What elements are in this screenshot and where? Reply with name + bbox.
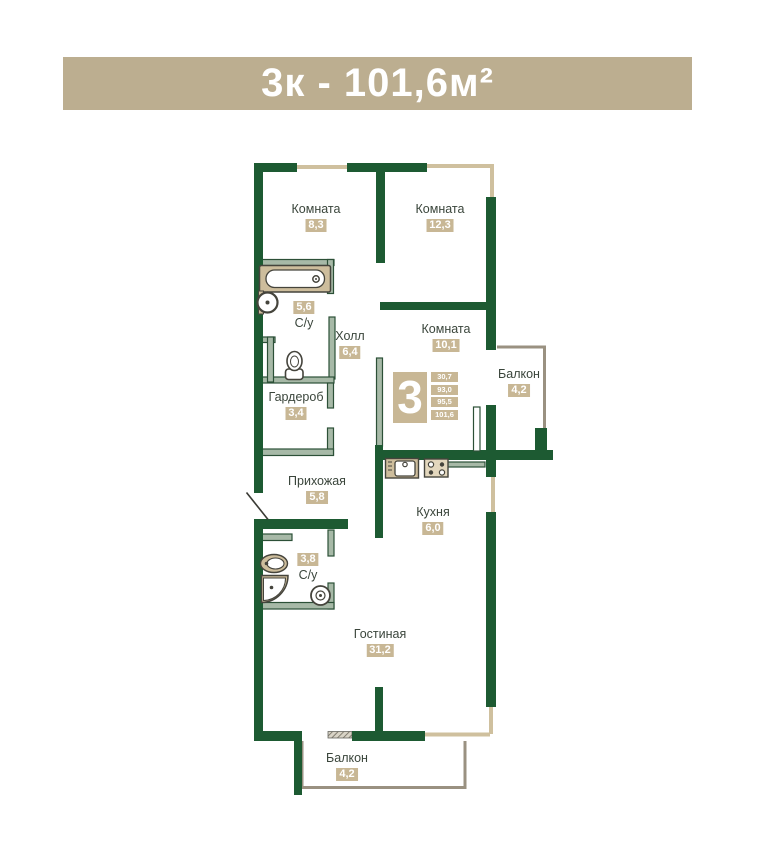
room-label-bathroom-2: 3,8 С/у (297, 553, 318, 582)
area-value: 95,5 (431, 397, 458, 407)
room-label-komnata-2: Комната 12,3 (416, 202, 465, 232)
area-value: 101,6 (431, 410, 458, 420)
room-label-entry: Прихожая 5,8 (288, 474, 346, 504)
area-badge: 6,0 (422, 522, 443, 535)
floor-plan-page: 3к - 101,6м² (0, 0, 762, 866)
floor-plan-drawing (0, 0, 762, 866)
entrance-door-icon (247, 493, 269, 520)
shower-icon (262, 576, 289, 603)
apartment-summary: 3 30,7 93,0 95,5 101,6 (393, 372, 458, 423)
balcony-door-icon (474, 407, 481, 451)
area-badge: 8,3 (305, 219, 326, 232)
kitchen-sink-icon (386, 459, 419, 479)
area-badge: 5,6 (293, 301, 314, 314)
room-label-living: Гостиная 31,2 (354, 627, 406, 657)
area-value: 30,7 (431, 372, 458, 382)
area-badge: 31,2 (366, 644, 393, 657)
toilet-icon (286, 352, 304, 380)
stove-icon (425, 459, 449, 477)
floor-plan: Комната 8,3 Комната 12,3 5,6 С/у Холл 6,… (0, 0, 762, 866)
room-label-komnata-1: Комната 8,3 (292, 202, 341, 232)
area-badge: 4,2 (508, 384, 529, 397)
room-label-komnata-3: Комната 10,1 (422, 322, 471, 352)
area-badge: 4,2 (336, 768, 357, 781)
room-label-balcony-right: Балкон 4,2 (498, 367, 540, 397)
area-badge: 5,8 (306, 491, 327, 504)
area-badge: 3,4 (285, 407, 306, 420)
washbasin-icon (261, 555, 288, 573)
area-badge: 6,4 (339, 346, 360, 359)
area-values: 30,7 93,0 95,5 101,6 (431, 372, 458, 423)
bathtub-icon (260, 266, 331, 293)
room-label-bathroom-1: 5,6 С/у (293, 301, 314, 330)
room-label-hall: Холл 6,4 (335, 329, 364, 359)
room-label-balcony-bottom: Балкон 4,2 (326, 751, 368, 781)
area-badge: 3,8 (297, 553, 318, 566)
toilet-icon (311, 586, 330, 605)
area-badge: 12,3 (426, 219, 453, 232)
area-value: 93,0 (431, 385, 458, 395)
room-label-wardrobe: Гардероб 3,4 (269, 390, 324, 420)
area-badge: 10,1 (432, 339, 459, 352)
sink-icon (258, 291, 278, 314)
rooms-count: 3 (393, 372, 427, 423)
room-label-kitchen: Кухня 6,0 (416, 505, 449, 535)
hatched-window (328, 732, 352, 739)
